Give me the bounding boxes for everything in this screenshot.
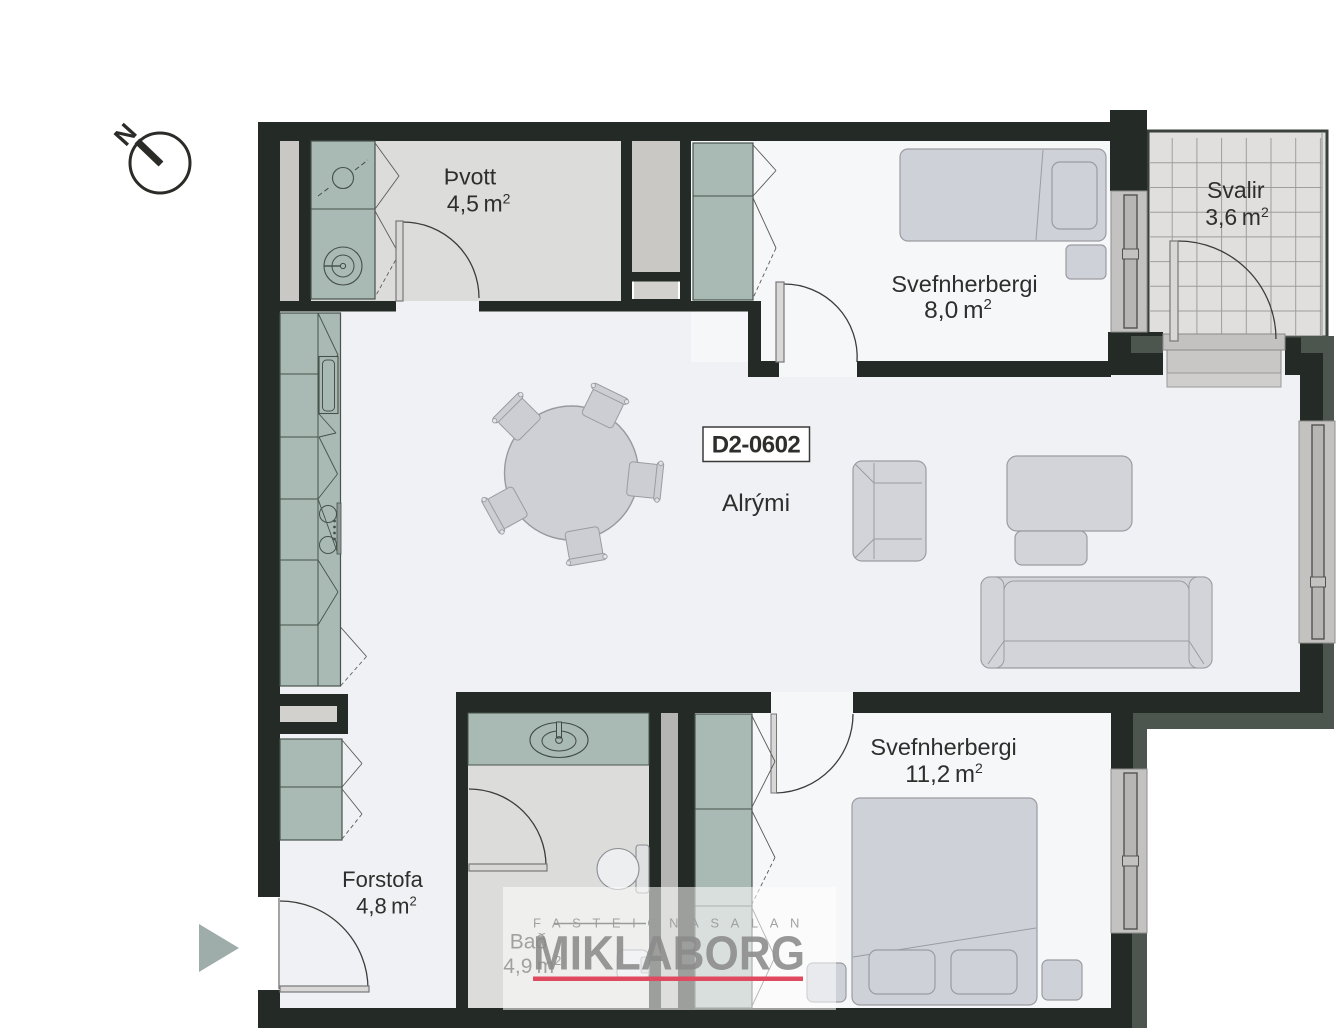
svg-text:MIKLABORG: MIKLABORG bbox=[533, 928, 805, 981]
svg-text:4,5 m2: 4,5 m2 bbox=[447, 191, 511, 217]
svg-text:3,6 m2: 3,6 m2 bbox=[1205, 204, 1269, 230]
svg-text:D2-0602: D2-0602 bbox=[712, 432, 801, 459]
svg-text:Svalir: Svalir bbox=[1207, 177, 1265, 203]
svg-text:Þvott: Þvott bbox=[444, 164, 497, 190]
svg-text:8,0 m2: 8,0 m2 bbox=[924, 296, 992, 324]
svg-text:Forstofa: Forstofa bbox=[342, 867, 423, 892]
svg-text:11,2 m2: 11,2 m2 bbox=[905, 760, 983, 788]
svg-text:Alrými: Alrými bbox=[722, 490, 790, 517]
svg-text:Svefnherbergi: Svefnherbergi bbox=[870, 734, 1016, 760]
svg-text:4,8 m2: 4,8 m2 bbox=[356, 894, 417, 919]
svg-text:Svefnherbergi: Svefnherbergi bbox=[891, 271, 1037, 297]
